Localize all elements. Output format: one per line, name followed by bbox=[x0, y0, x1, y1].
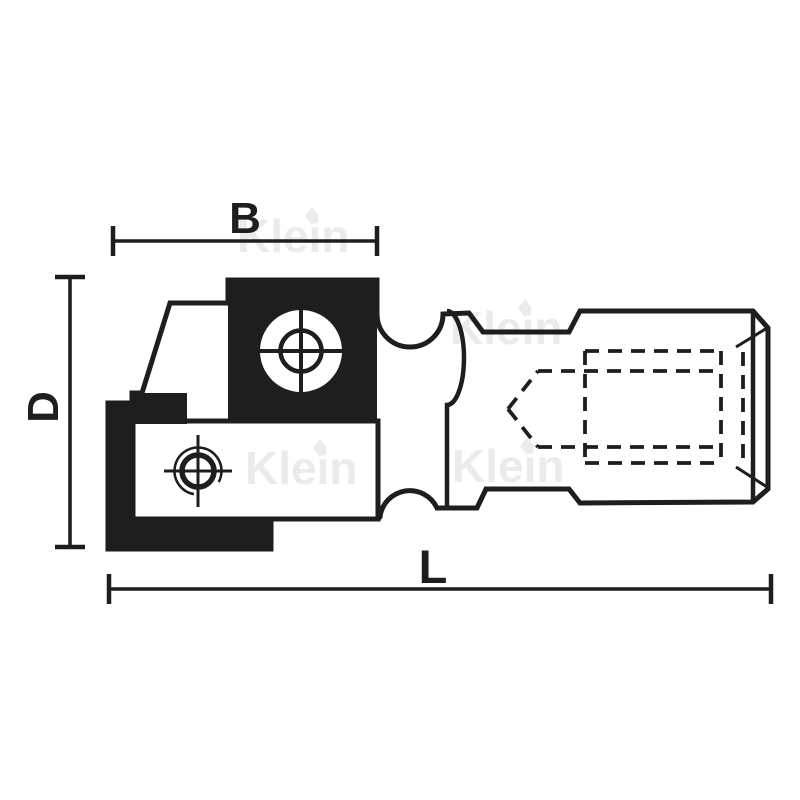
watermark: Klein bbox=[245, 439, 357, 494]
dimension-d: D bbox=[19, 277, 85, 547]
watermark: Klein bbox=[450, 299, 562, 354]
technical-drawing-page: Klein Klein Klein Klein Klein bbox=[0, 0, 800, 800]
knife-clamp-step bbox=[132, 393, 187, 424]
dimension-b-label: B bbox=[229, 194, 261, 243]
dimension-d-label: D bbox=[19, 391, 68, 423]
watermark-text: Klein bbox=[450, 302, 562, 354]
cutter-head-diagram: Klein Klein Klein Klein Klein bbox=[0, 0, 800, 800]
watermark-text: Klein bbox=[245, 442, 357, 494]
dimension-l-label: L bbox=[419, 540, 448, 593]
